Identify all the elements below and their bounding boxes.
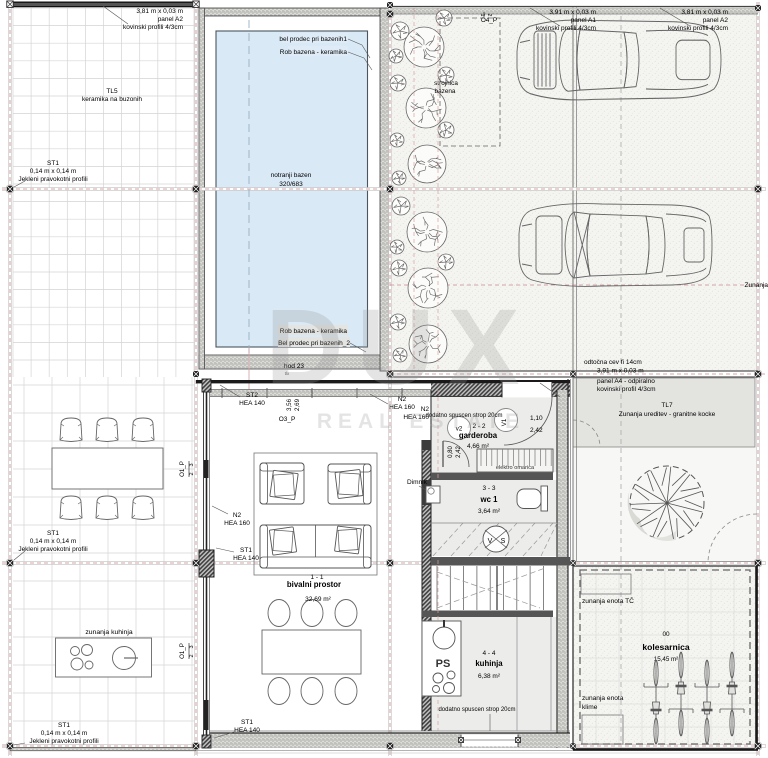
svg-text:bel prodec pri bazenih1: bel prodec pri bazenih1 [279, 36, 347, 43]
svg-text:S: S [501, 538, 506, 545]
svg-text:TL7: TL7 [661, 402, 673, 409]
svg-text:O1_P: O1_P [179, 461, 186, 477]
svg-text:kolesarnica: kolesarnica [642, 642, 690, 652]
svg-text:V: V [488, 538, 493, 545]
svg-text:HEA 140: HEA 140 [234, 727, 260, 734]
svg-text:320/683: 320/683 [279, 181, 303, 188]
svg-text:wc 1: wc 1 [480, 495, 499, 504]
svg-text:kovinski profili 4/3cm: kovinski profili 4/3cm [536, 25, 596, 32]
svg-text:kovinski profili 4/3cm: kovinski profili 4/3cm [668, 25, 728, 32]
svg-text:zunanja enota TČ: zunanja enota TČ [582, 596, 634, 605]
svg-text:HEA 140: HEA 140 [239, 400, 265, 407]
svg-text:O4_P: O4_P [481, 17, 497, 24]
svg-text:N2: N2 [233, 512, 242, 519]
svg-text:elektro omarica: elektro omarica [496, 465, 535, 471]
svg-text:REAL ESTATE: REAL ESTATE [317, 410, 525, 433]
svg-text:panel A2: panel A2 [703, 17, 729, 24]
svg-text:kuhinja: kuhinja [475, 659, 503, 668]
svg-text:3,91 m x 0,03 m: 3,91 m x 0,03 m [549, 9, 596, 16]
svg-text:O3_P: O3_P [279, 416, 296, 423]
svg-text:zunanja enota: zunanja enota [582, 695, 624, 702]
svg-text:3,81 m x 0,03 m: 3,81 m x 0,03 m [136, 8, 183, 15]
svg-text:Jekleni pravokotni profili: Jekleni pravokotni profili [18, 546, 87, 553]
svg-text:3: 3 [189, 645, 195, 648]
svg-text:2: 2 [486, 14, 492, 17]
svg-text:ST1: ST1 [47, 530, 59, 537]
svg-text:ST1: ST1 [241, 719, 253, 726]
svg-text:1,10: 1,10 [530, 415, 543, 422]
svg-text:1: 1 [479, 14, 485, 17]
svg-text:odtočna cev fi 14cm: odtočna cev fi 14cm [584, 359, 642, 366]
svg-text:Zunanja: Zunanja [745, 282, 768, 289]
svg-text:6,38 m²: 6,38 m² [478, 673, 501, 680]
svg-text:HEA 160: HEA 160 [224, 520, 250, 527]
svg-text:2: 2 [189, 654, 195, 657]
svg-text:Zunanja ureditev - granitne ko: Zunanja ureditev - granitne kocke [619, 411, 716, 418]
svg-text:0,14 m x 0,14 m: 0,14 m x 0,14 m [30, 538, 77, 545]
svg-text:ST1: ST1 [240, 547, 252, 554]
svg-text:3,64 m²: 3,64 m² [478, 508, 501, 515]
svg-text:Jekleni pravokotni profili: Jekleni pravokotni profili [29, 738, 98, 745]
svg-text:ST2: ST2 [246, 392, 258, 399]
svg-text:kovinski profili 4/3cm: kovinski profili 4/3cm [123, 24, 183, 31]
svg-text:DUX: DUX [265, 286, 532, 407]
svg-text:0,14 m x 0,14 m: 0,14 m x 0,14 m [30, 168, 77, 175]
svg-text:ST1: ST1 [58, 722, 70, 729]
svg-text:klime: klime [582, 704, 598, 711]
svg-text:PS: PS [436, 658, 451, 670]
svg-text:3,81 m x 0,03 m: 3,81 m x 0,03 m [681, 9, 728, 16]
svg-text:panel A1: panel A1 [571, 17, 597, 24]
svg-text:O1_P: O1_P [179, 643, 186, 659]
svg-text:dodatno spuscen strop 20cm: dodatno spuscen strop 20cm [438, 707, 515, 713]
svg-text:3: 3 [189, 463, 195, 466]
svg-text:0,80: 0,80 [448, 446, 454, 458]
svg-text:2,42: 2,42 [456, 446, 462, 458]
svg-text:kovinski profil 4/3cm: kovinski profil 4/3cm [597, 386, 656, 393]
svg-text:HEA 140: HEA 140 [233, 555, 259, 562]
svg-text:zunanja kuhinja: zunanja kuhinja [85, 629, 132, 636]
svg-text:TL5: TL5 [106, 88, 118, 95]
svg-text:4 - 4: 4 - 4 [482, 650, 495, 657]
svg-text:00: 00 [662, 631, 670, 638]
svg-text:2,42: 2,42 [530, 427, 543, 434]
svg-text:notranji bazen: notranji bazen [271, 172, 312, 179]
svg-text:panel A4 - odpiralno: panel A4 - odpiralno [597, 378, 655, 385]
svg-text:4,66 m²: 4,66 m² [467, 443, 490, 450]
svg-text:Rob bazena - keramika: Rob bazena - keramika [280, 49, 348, 56]
svg-text:Jekleni pravokotni profili: Jekleni pravokotni profili [18, 176, 87, 183]
svg-text:bivalni prostor: bivalni prostor [287, 580, 341, 589]
svg-text:3 - 3: 3 - 3 [482, 485, 495, 492]
svg-text:3,91 m x 0,03 m: 3,91 m x 0,03 m [597, 368, 644, 375]
svg-text:panel A2: panel A2 [158, 16, 184, 23]
svg-text:Dimnik: Dimnik [407, 479, 428, 486]
svg-text:2: 2 [189, 472, 195, 475]
svg-text:32,69 m²: 32,69 m² [305, 596, 331, 603]
svg-text:ST1: ST1 [47, 160, 59, 167]
svg-text:0,14 m x 0,14 m: 0,14 m x 0,14 m [41, 730, 88, 737]
svg-text:keramika na buzonih: keramika na buzonih [82, 96, 142, 103]
